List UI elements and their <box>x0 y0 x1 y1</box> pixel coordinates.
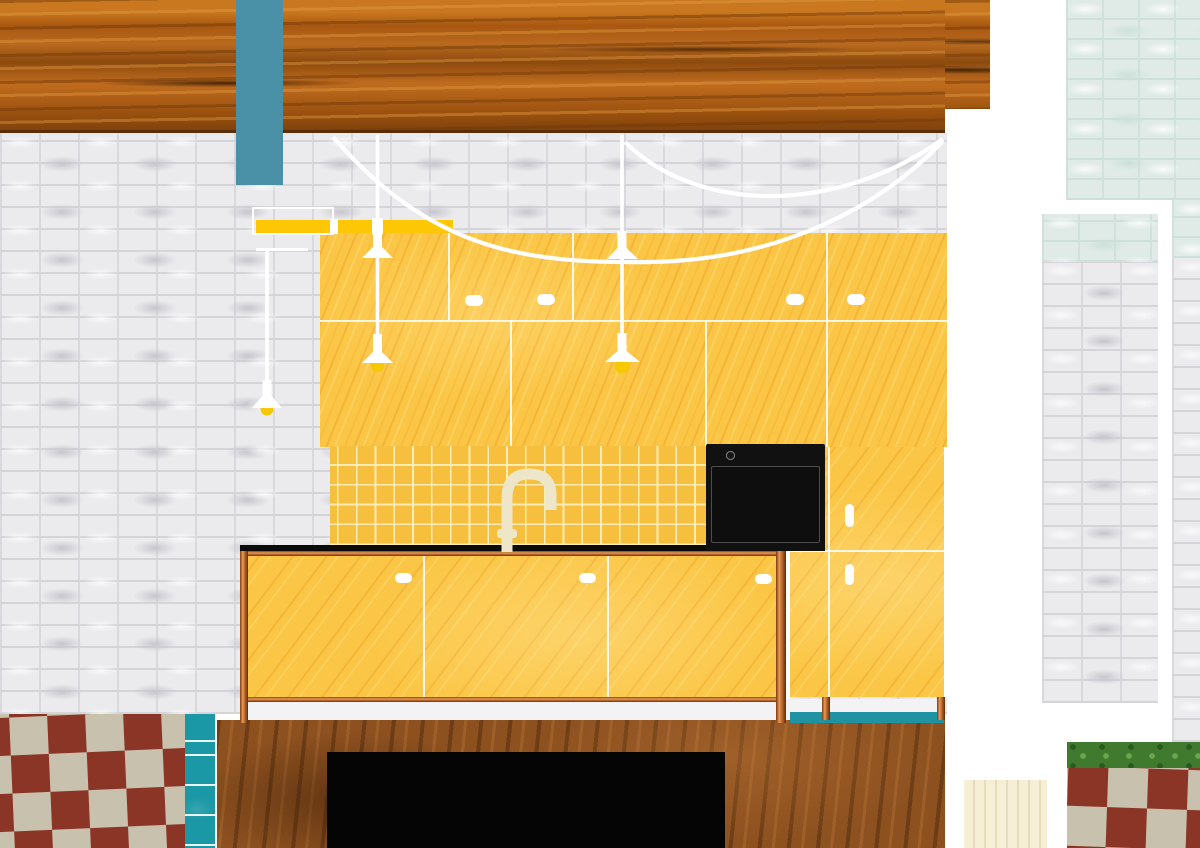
faucet-gooseneck <box>507 474 551 552</box>
cord-swoops <box>333 137 943 262</box>
lamp-shade <box>607 231 638 259</box>
lamp-shade <box>362 334 393 363</box>
lamp-shade <box>252 380 282 408</box>
lamp-shade <box>605 333 640 362</box>
faucet <box>497 474 551 552</box>
pendant-shades <box>252 231 640 408</box>
lighting-and-faucet-overlay <box>0 0 1200 848</box>
cord-swoop-short <box>625 139 943 196</box>
lamp-shade <box>362 231 393 258</box>
kitchen-collage <box>0 0 1200 848</box>
faucet-valve <box>497 529 517 538</box>
pendant-bulbs <box>261 358 630 416</box>
